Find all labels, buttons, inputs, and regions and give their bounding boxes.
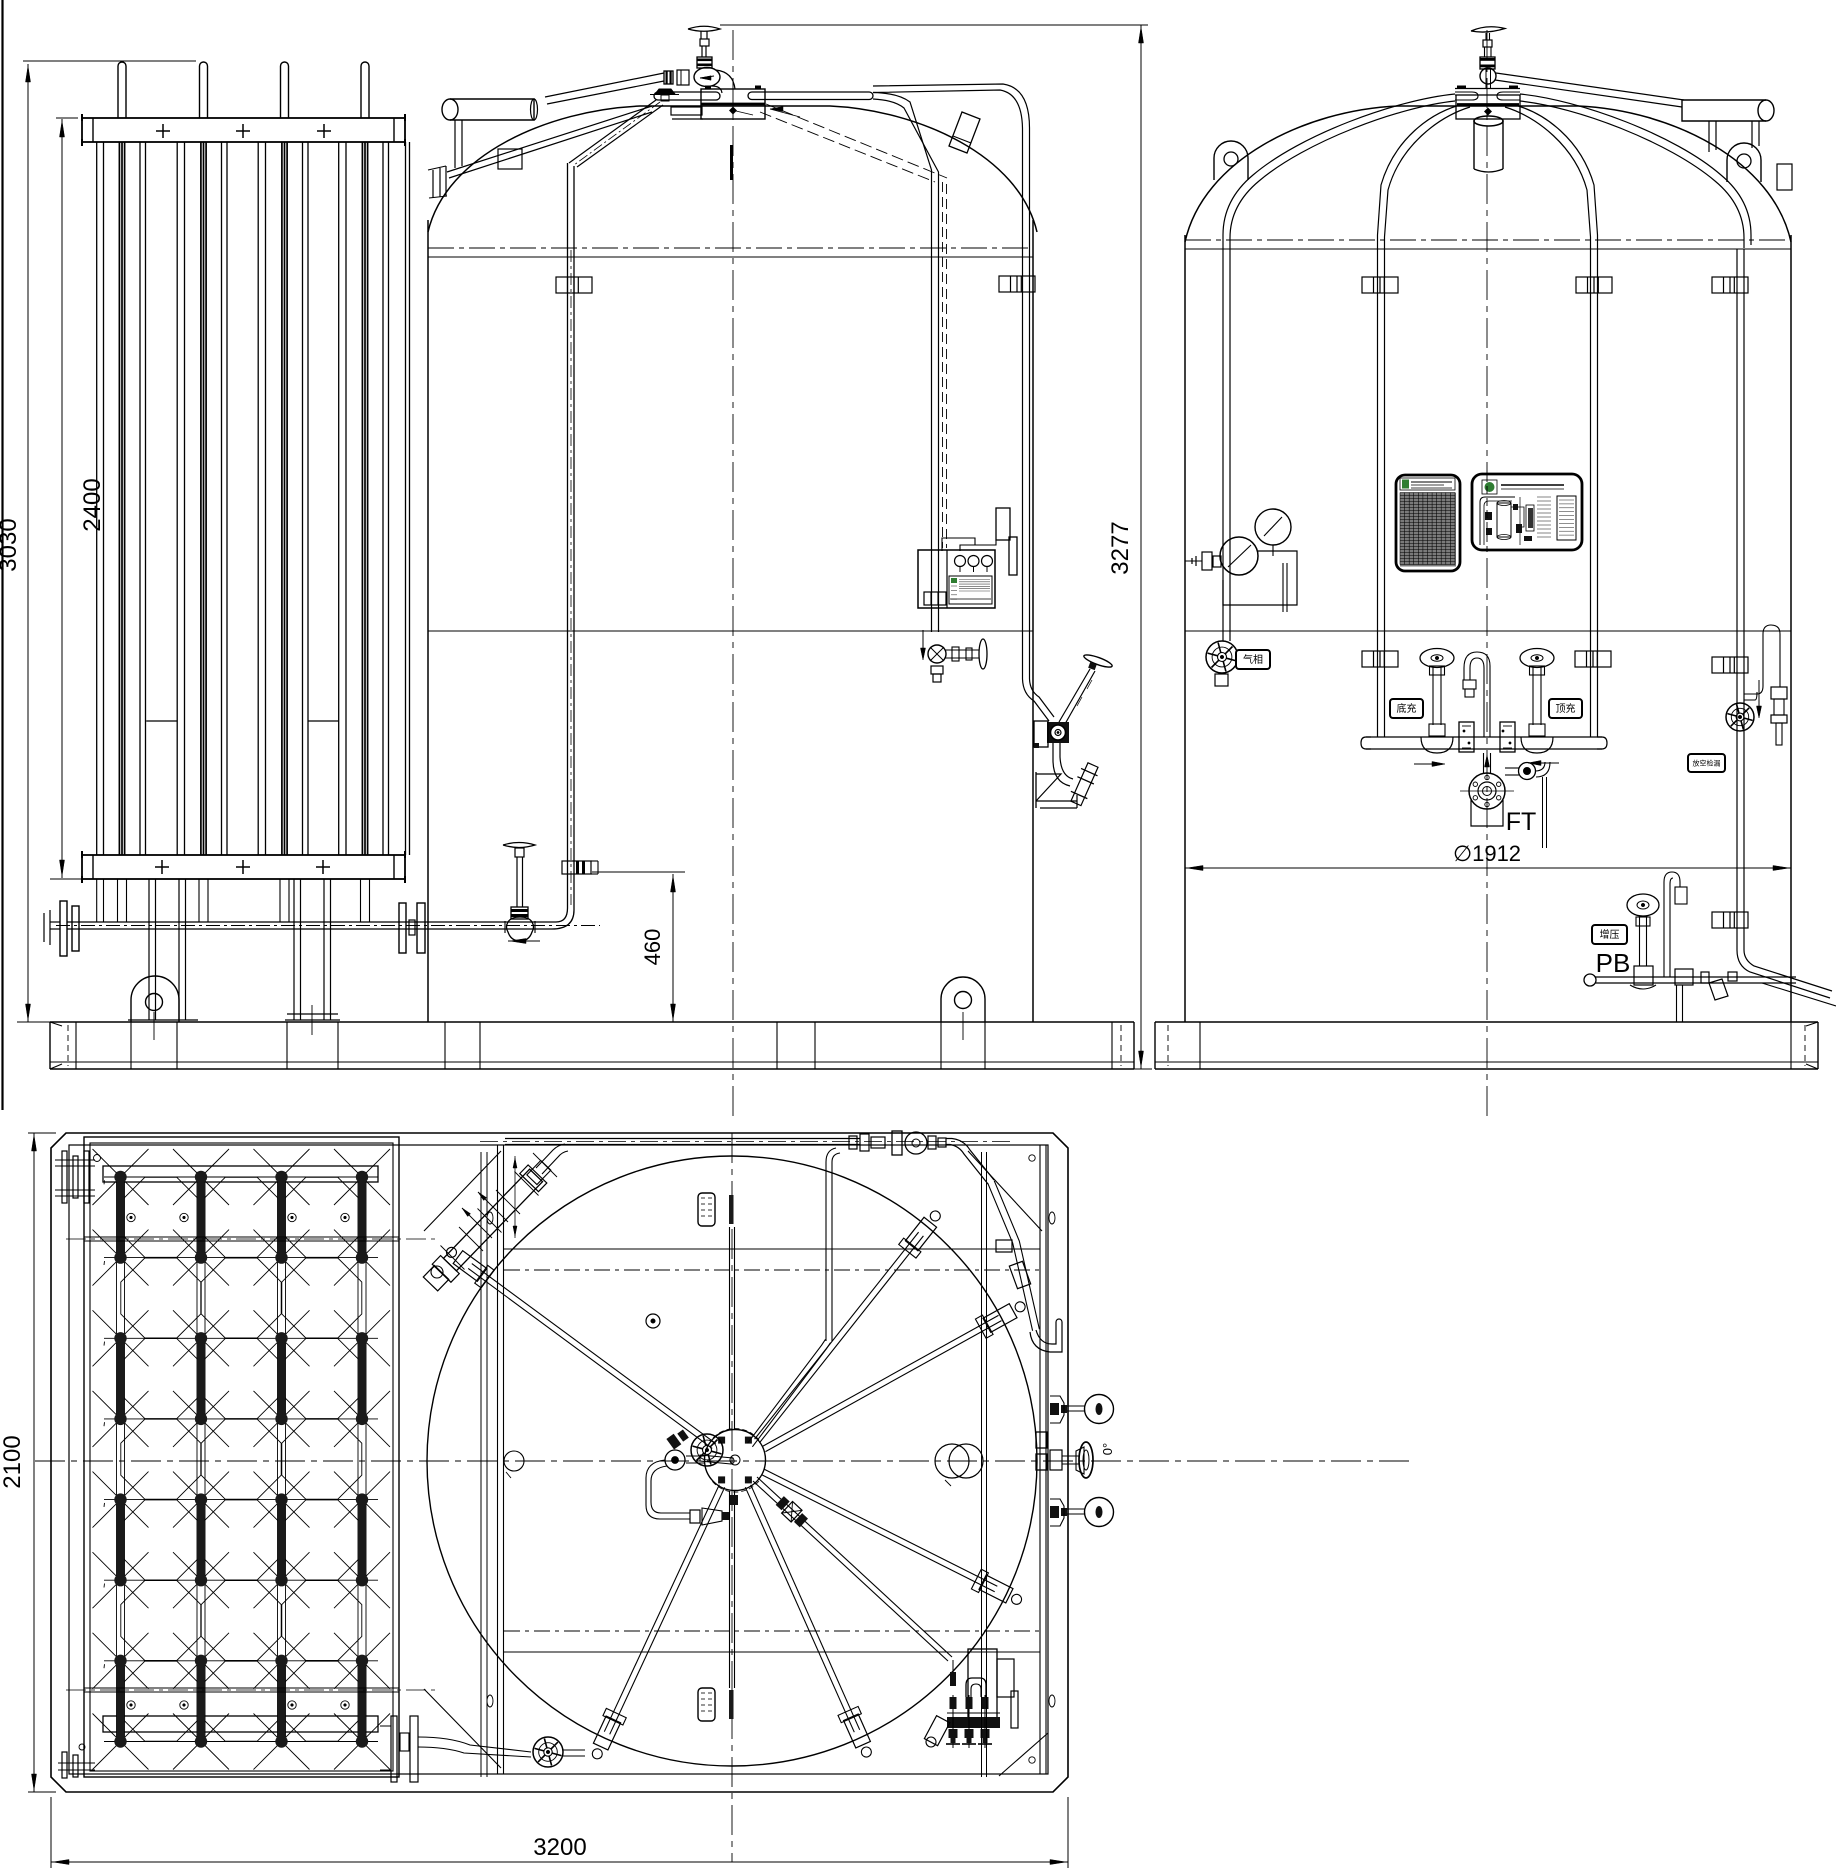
svg-text:2100: 2100 — [0, 1435, 26, 1488]
svg-text:底充: 底充 — [1397, 702, 1417, 715]
svg-text:增压: 增压 — [1600, 928, 1620, 941]
svg-text:∅1912: ∅1912 — [1453, 841, 1521, 866]
svg-text:顶充: 顶充 — [1556, 702, 1576, 715]
svg-text:气相: 气相 — [1243, 653, 1263, 666]
svg-text:2400: 2400 — [79, 478, 106, 531]
svg-text:放空检漏: 放空检漏 — [1693, 759, 1721, 768]
svg-text:FT: FT — [1506, 808, 1537, 836]
svg-text:3200: 3200 — [533, 1834, 586, 1861]
svg-text:PB: PB — [1596, 948, 1631, 978]
svg-text:0°: 0° — [1100, 1443, 1115, 1455]
svg-text:3277: 3277 — [1107, 521, 1134, 574]
svg-text:460: 460 — [640, 929, 665, 966]
svg-text:3030: 3030 — [0, 518, 22, 571]
